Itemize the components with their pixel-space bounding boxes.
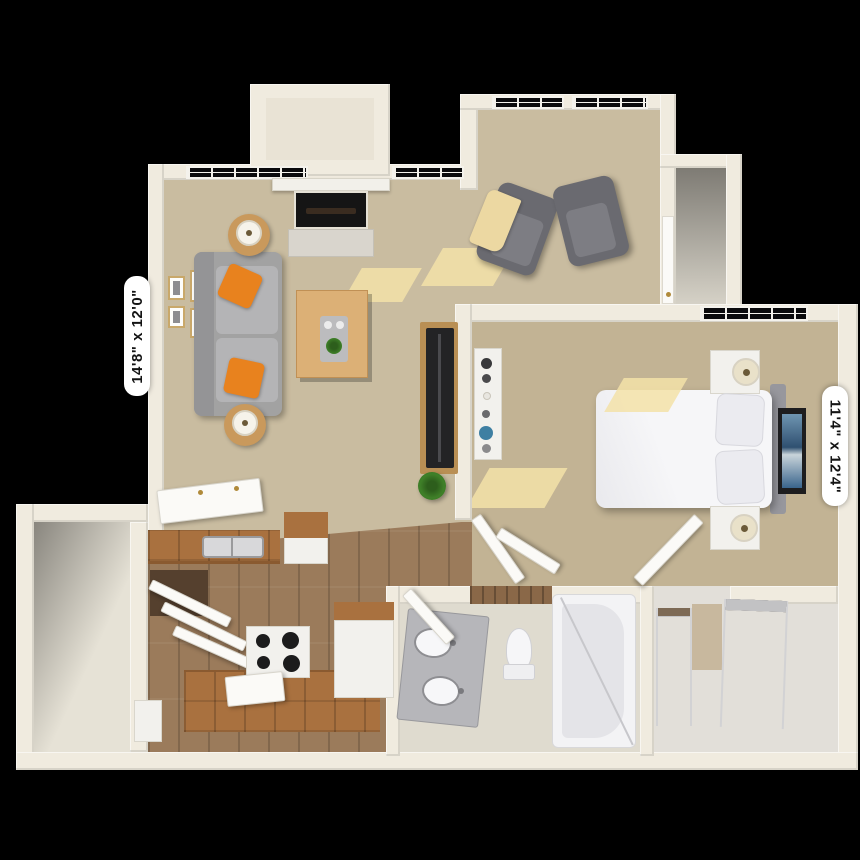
fireplace-log-rack — [306, 208, 356, 214]
living-room-left-wall — [148, 164, 164, 536]
sitting-nook-floor — [478, 110, 660, 190]
bedroom-right-wall — [838, 304, 858, 756]
bedroom-dimensions-text: 11'4" x 12'4" — [827, 399, 844, 493]
counter-tray — [225, 671, 286, 707]
entry-door-knob — [666, 292, 671, 297]
bathroom-wood-accent-wall — [470, 586, 552, 604]
wall-artwork — [782, 414, 802, 488]
table-lamp-finial — [246, 230, 252, 236]
stove — [246, 626, 310, 678]
living-room-window-right — [392, 166, 464, 179]
television-screen-line — [438, 334, 441, 462]
bed-pillow — [715, 393, 766, 447]
bar-hinge — [234, 486, 239, 491]
gallery-wall-frame — [168, 306, 185, 328]
fireplace-bumpout-inner — [266, 98, 374, 160]
closet-back-wall — [692, 604, 722, 670]
entry-corridor-floor — [676, 168, 726, 310]
tray-cup — [336, 321, 344, 329]
living-room-dimensions-pill: 14'8" x 12'0" — [124, 276, 150, 396]
entry-hall-shadow — [34, 522, 130, 752]
apartment-floor-plan: 14'8" x 12'0" 11'4" x 12'4" — [0, 0, 860, 860]
closet-doorway-floor — [652, 586, 730, 604]
bar-hinge — [198, 490, 203, 495]
living-room-dimensions-text: 14'8" x 12'0" — [129, 289, 146, 384]
dresser-decor — [482, 410, 490, 418]
entry-hall-left-wall — [16, 504, 34, 770]
sofa-pillow-orange — [223, 357, 266, 400]
kitchen-sink — [202, 536, 264, 558]
bedside-lamp-finial — [743, 369, 750, 376]
entry-hall-top-wall — [16, 504, 148, 522]
gallery-wall-frame — [168, 276, 185, 300]
bedside-lamp-finial — [741, 525, 748, 532]
bedroom-dimensions-pill: 11'4" x 12'4" — [822, 386, 848, 506]
stove-burner — [282, 632, 299, 649]
table-lamp-finial — [242, 420, 248, 426]
nook-window-right — [572, 96, 648, 109]
dresser-decor — [483, 392, 491, 400]
bedroom-window — [700, 306, 808, 321]
stove-burner — [283, 655, 300, 672]
stove-burner — [257, 656, 270, 669]
pantry-cabinet-top — [284, 512, 328, 538]
bathroom-closet-divider-wall — [640, 586, 654, 756]
bed-pillow — [715, 449, 766, 505]
tray-cup — [324, 321, 332, 329]
vanity-faucet — [458, 688, 464, 694]
bottom-outer-wall — [16, 752, 858, 770]
bathtub-basin — [562, 604, 624, 738]
dresser-decor — [481, 358, 492, 369]
dresser-decor — [482, 444, 491, 453]
sofa-back — [194, 252, 214, 416]
hall-cabinet — [134, 700, 162, 742]
refrigerator-top — [334, 602, 394, 622]
closet-shelf-right — [720, 599, 788, 729]
stove-burner — [256, 634, 270, 648]
refrigerator — [334, 620, 394, 698]
kitchen-sink-divider — [231, 538, 233, 556]
fireplace-hearth — [288, 229, 374, 257]
vanity-faucet — [450, 640, 456, 646]
corridor-right-wall — [726, 154, 742, 310]
dresser-decor — [482, 374, 491, 383]
toilet-tank — [503, 664, 535, 680]
entry-door — [662, 216, 674, 304]
nook-window-left — [492, 96, 564, 109]
potted-plant — [418, 472, 446, 500]
closet-shelf-left — [656, 608, 692, 726]
tray-plant — [326, 338, 342, 354]
dresser-decor-blue-vase — [479, 426, 493, 440]
fireplace-mantel — [272, 178, 390, 191]
